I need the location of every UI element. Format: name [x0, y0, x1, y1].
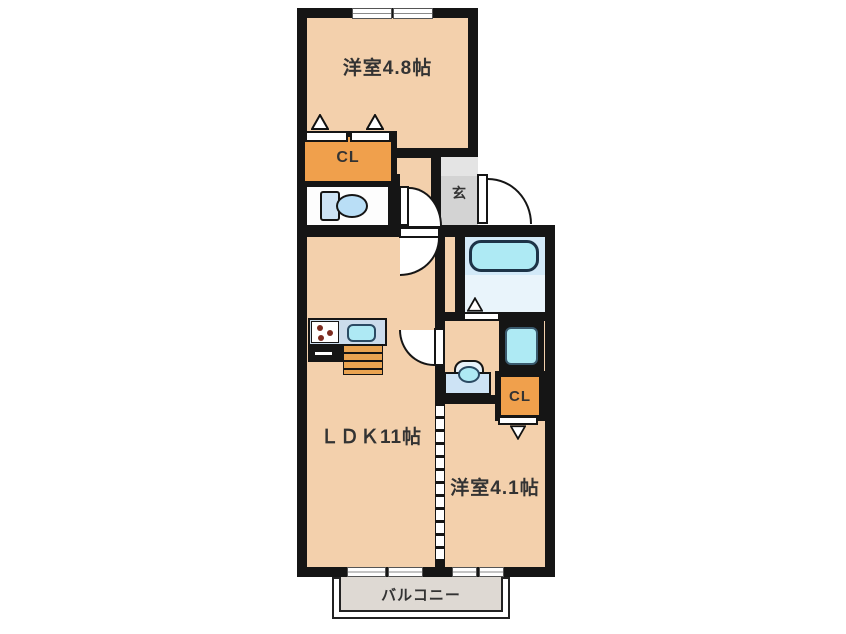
sink-basin-icon	[458, 366, 480, 383]
bedroom2-window	[452, 567, 477, 577]
folding-door-icon	[366, 114, 384, 130]
floor-plan: 玄 CL CL	[0, 0, 846, 634]
closet2-label: CL	[501, 386, 539, 406]
closet1-label: CL	[305, 148, 391, 168]
bathtub-icon	[469, 240, 539, 272]
burner-icon	[318, 335, 324, 341]
balcony-label: バルコニー	[339, 585, 503, 605]
toilet-bowl-icon	[336, 194, 368, 218]
folding-door-icon	[467, 297, 483, 312]
corridor-floor	[445, 237, 455, 312]
ldk-floor	[307, 237, 435, 567]
closet1-door-panel-right	[350, 131, 391, 142]
ldk-label: ＬＤＫ11帖	[307, 426, 435, 448]
washroom-door-leaf	[434, 328, 445, 366]
ldk-window	[388, 567, 423, 577]
folding-door-icon	[311, 114, 329, 130]
kitchen-base-handle	[315, 352, 332, 355]
closet2-door-panel	[498, 416, 538, 425]
sliding-door-icon	[436, 406, 444, 560]
closet1-door-panel-left	[305, 131, 348, 142]
ldk-window	[347, 567, 386, 577]
ldk-door-leaf	[399, 227, 440, 238]
washing-machine-icon	[505, 327, 538, 365]
kitchen-cabinet-icon	[343, 345, 383, 375]
burner-icon	[327, 330, 333, 336]
burner-icon	[317, 325, 323, 331]
genkan-label: 玄	[441, 184, 478, 202]
bedroom1-floor	[307, 18, 468, 148]
entrance-door-leaf	[477, 174, 488, 224]
bedroom2-window	[479, 567, 504, 577]
bedroom1-label: 洋室4.8帖	[307, 57, 468, 79]
toilet-door-leaf	[399, 186, 409, 226]
bedroom1-window	[352, 8, 392, 19]
entrance-door-swing-icon	[488, 178, 532, 224]
genkan-step	[441, 157, 478, 176]
stove-icon	[311, 321, 339, 343]
bedroom2-label: 洋室4.1帖	[445, 477, 545, 499]
bedroom1-window	[393, 8, 433, 19]
kitchen-sink-icon	[347, 324, 376, 342]
bathroom-door-panel	[463, 312, 500, 321]
folding-door-icon	[510, 425, 526, 440]
